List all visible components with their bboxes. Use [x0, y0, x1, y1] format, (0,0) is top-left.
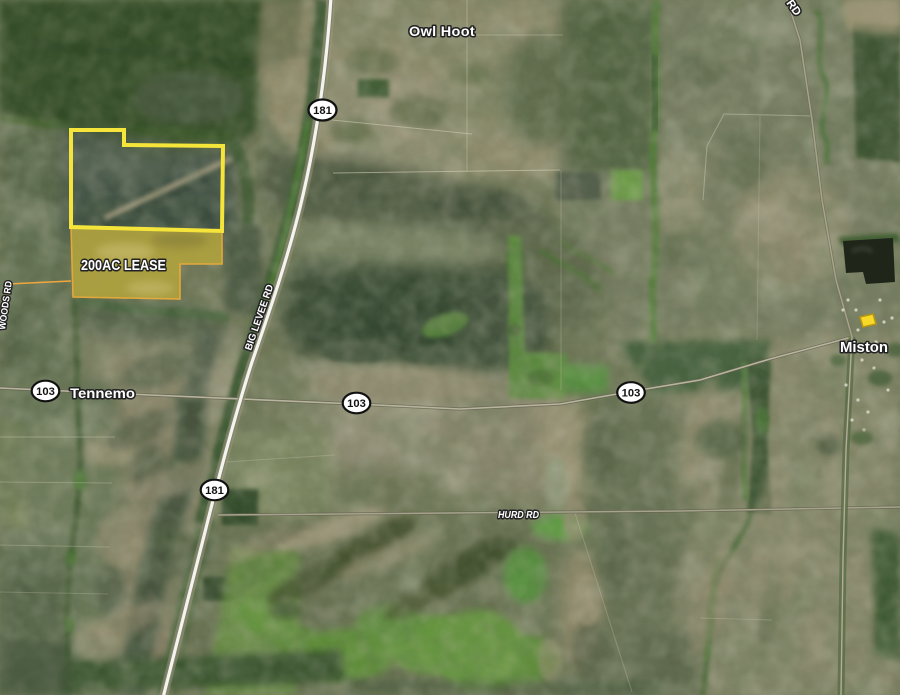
svg-text:103: 103: [622, 388, 641, 400]
svg-text:Owl Hoot: Owl Hoot: [409, 23, 475, 39]
svg-text:200AC LEASE: 200AC LEASE: [81, 258, 166, 274]
svg-text:103: 103: [347, 398, 366, 410]
svg-text:181: 181: [205, 485, 224, 497]
svg-text:HURD RD: HURD RD: [498, 509, 539, 521]
svg-text:Tennemo: Tennemo: [70, 385, 135, 401]
svg-text:181: 181: [313, 105, 332, 117]
svg-text:Miston: Miston: [840, 339, 888, 356]
svg-text:103: 103: [36, 386, 55, 398]
